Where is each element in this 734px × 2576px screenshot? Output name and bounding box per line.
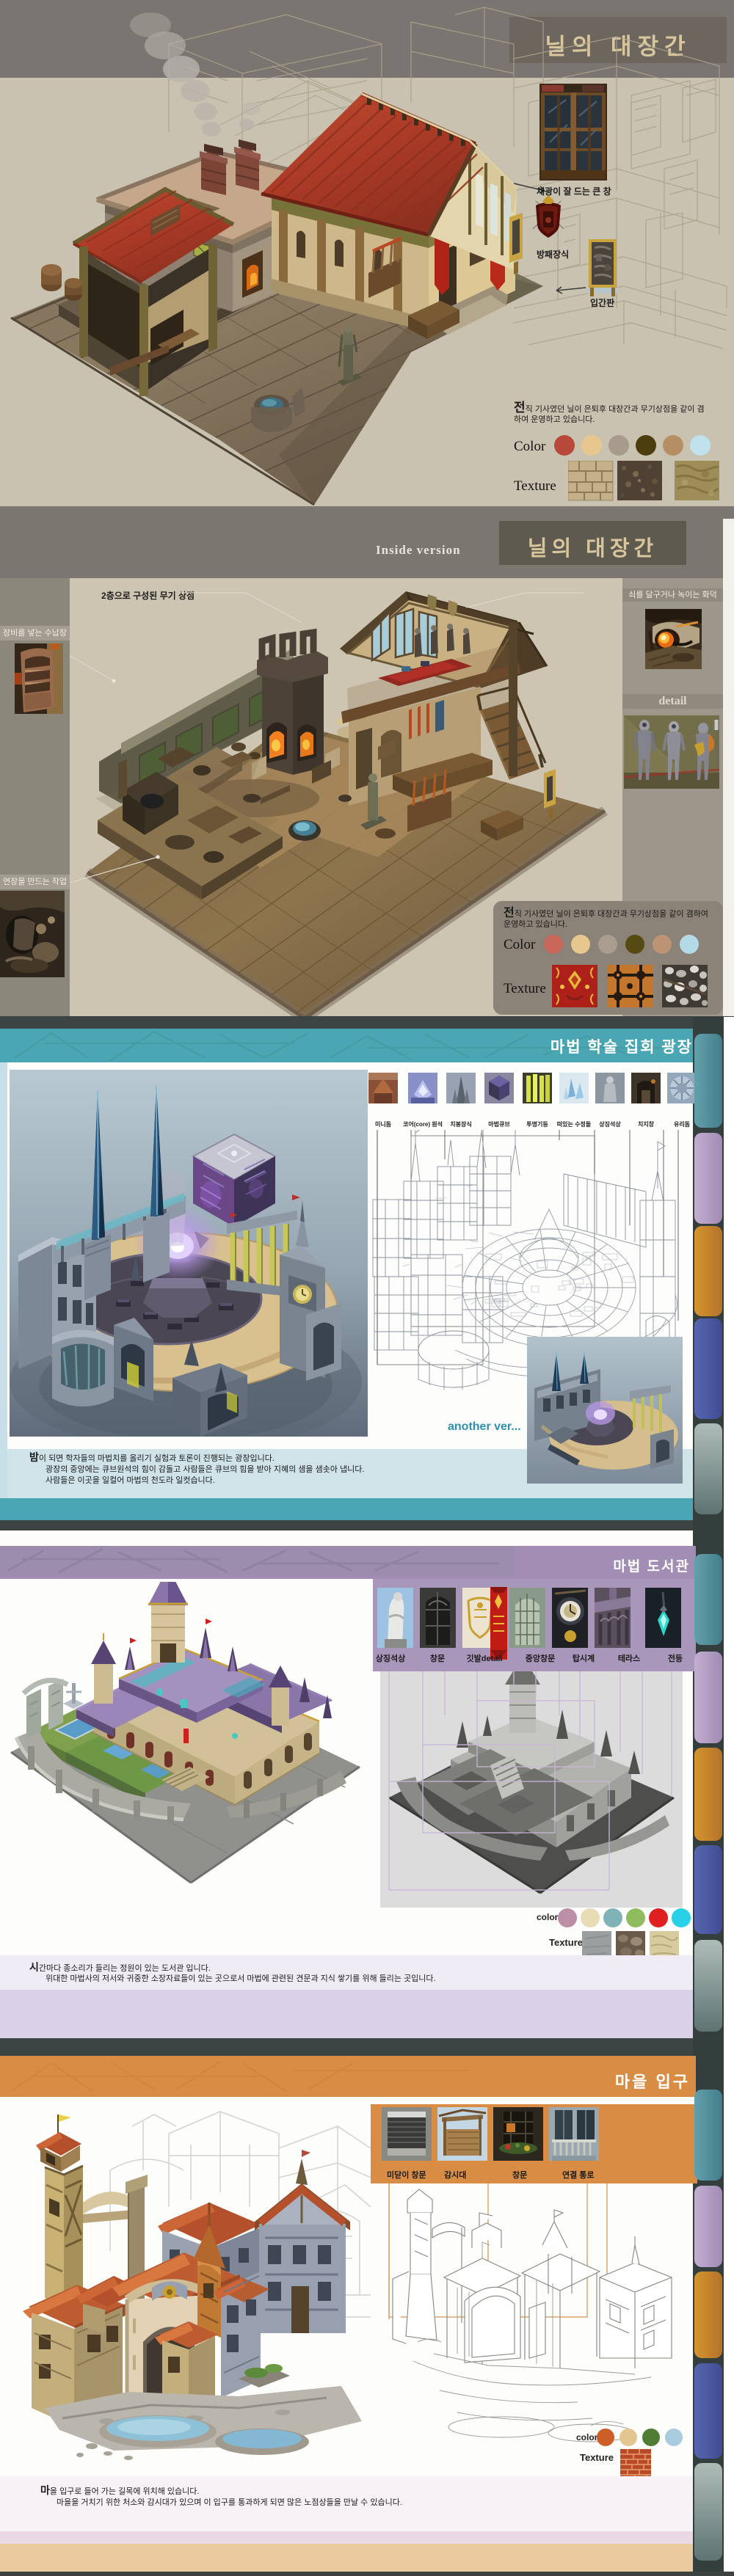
svg-text:코어(core) 원석: 코어(core) 원석	[403, 1120, 443, 1128]
svg-text:치봉장식: 치봉장식	[450, 1120, 471, 1128]
svg-text:유리돔: 유리돔	[674, 1120, 691, 1128]
svg-text:미니돔: 미니돔	[375, 1120, 392, 1128]
svg-text:치지창: 치지창	[638, 1120, 655, 1128]
svg-text:투명기둥: 투명기둥	[526, 1120, 548, 1128]
svg-text:마법큐브: 마법큐브	[488, 1120, 510, 1128]
svg-text:떠있는 수정돌: 떠있는 수정돌	[557, 1120, 592, 1128]
svg-text:상징석상: 상징석상	[599, 1120, 621, 1128]
